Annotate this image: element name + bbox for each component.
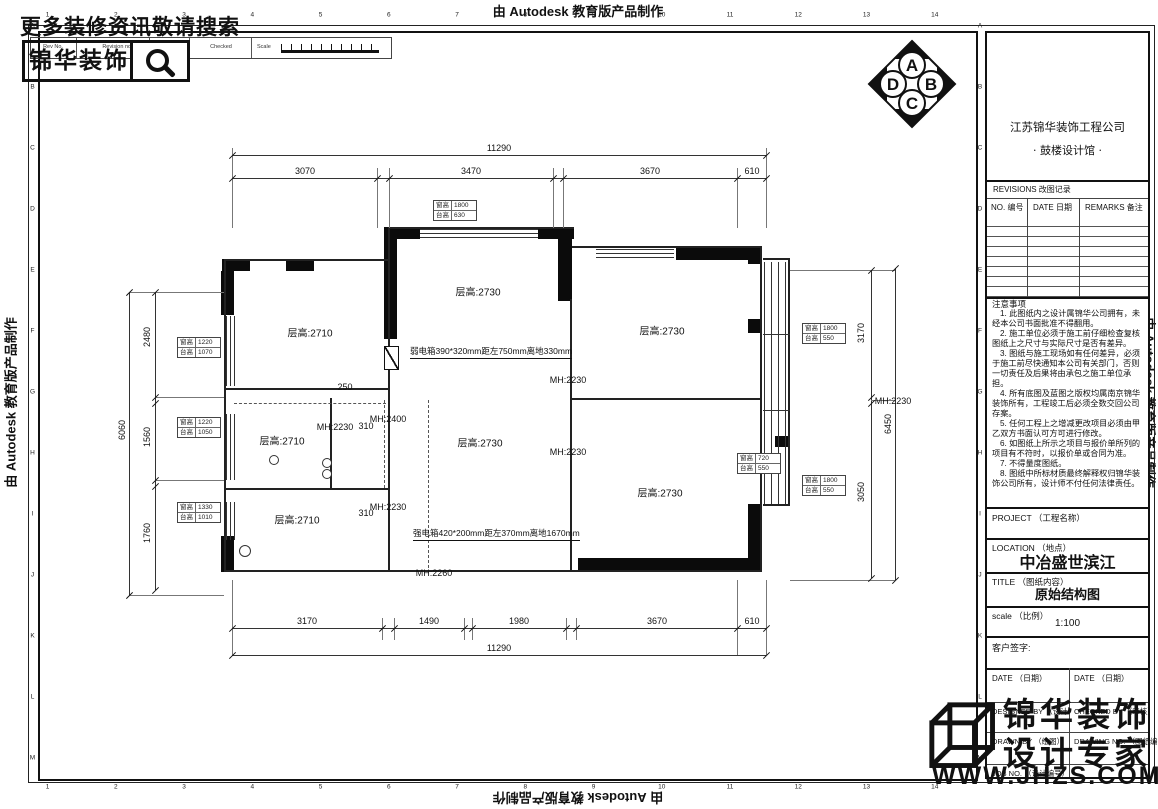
dimension-tick bbox=[892, 577, 899, 584]
divider bbox=[987, 572, 1148, 574]
dimension-label: 1760 bbox=[142, 523, 152, 543]
sill-height-key: 台高 bbox=[738, 464, 756, 473]
window-line bbox=[420, 237, 538, 238]
grid-row-right: J bbox=[978, 572, 981, 579]
extension-line bbox=[790, 580, 895, 581]
divider bbox=[987, 668, 1148, 670]
scale-label: Scale bbox=[257, 44, 271, 50]
window-height-key: 窗高 bbox=[434, 201, 452, 211]
extension-line bbox=[766, 148, 767, 228]
grid-col-top: 13 bbox=[863, 12, 870, 19]
grid-col-top: 14 bbox=[931, 12, 938, 19]
window-height-value: 1220 bbox=[196, 418, 220, 428]
dimension-label: 3050 bbox=[856, 482, 866, 502]
window-height-value: 1220 bbox=[196, 338, 220, 348]
window-height-key: 窗高 bbox=[178, 338, 196, 348]
window-line bbox=[230, 414, 231, 480]
grid-col-bottom: 1 bbox=[46, 784, 50, 791]
brand-logo: 锦华装饰 bbox=[22, 40, 136, 82]
grid-col-bottom: 3 bbox=[182, 784, 186, 791]
grid-col-bottom: 7 bbox=[455, 784, 459, 791]
grid-row-right: C bbox=[978, 145, 983, 152]
wall-line bbox=[224, 570, 762, 572]
window-height-tag: 窗高1800台高550 bbox=[802, 475, 846, 496]
wall-line bbox=[572, 246, 762, 248]
equipment-note: 弱电箱390*320mm距左750mm离地330mm bbox=[410, 345, 572, 359]
grid-col-top: 12 bbox=[795, 12, 802, 19]
wall-line bbox=[763, 504, 790, 506]
grid-col-bottom: 9 bbox=[592, 784, 596, 791]
mh-height-label: MH:2230 bbox=[370, 502, 407, 512]
graphic-scale-bar bbox=[281, 44, 379, 53]
location-value: 中冶盛世滨江 bbox=[987, 549, 1148, 573]
dimension-label: 6060 bbox=[117, 420, 127, 440]
extension-line bbox=[766, 580, 767, 655]
window-height-tag: 窗高1330台高1010 bbox=[177, 502, 221, 523]
window-height-tag: 窗高1220台高1070 bbox=[177, 337, 221, 358]
grid-col-bottom: 5 bbox=[319, 784, 323, 791]
dimension-label: 3070 bbox=[295, 166, 315, 176]
sill-height-key: 台高 bbox=[803, 486, 821, 495]
window-height-key: 窗高 bbox=[178, 503, 196, 513]
divider bbox=[987, 198, 1148, 199]
mh-height-label: MH:2230 bbox=[317, 422, 354, 432]
extension-line bbox=[737, 580, 738, 655]
window-line bbox=[234, 502, 235, 540]
grid-col-top: 6 bbox=[387, 12, 391, 19]
wall-solid-segment bbox=[384, 239, 397, 339]
window-height-tag: 窗高1220台高1050 bbox=[177, 417, 221, 438]
grid-col-top: 11 bbox=[727, 12, 734, 19]
divider bbox=[251, 38, 252, 58]
grid-col-bottom: 11 bbox=[727, 784, 734, 791]
grid-row-left: K bbox=[30, 633, 34, 640]
grid-col-top: 8 bbox=[523, 12, 527, 19]
grid-row-right: K bbox=[978, 633, 982, 640]
company-name: 江苏锦华装饰工程公司 bbox=[987, 119, 1148, 135]
grid-col-bottom: 2 bbox=[114, 784, 118, 791]
drawing-title: 原始结构图 bbox=[987, 584, 1148, 603]
rev-col-date: DATE 日期 bbox=[1033, 202, 1072, 213]
window-height-tag: 窗高720台高550 bbox=[737, 453, 781, 474]
grid-row-left: D bbox=[30, 206, 35, 213]
note-item: 4. 所有底图及蓝图之版权均属南京锦华装饰所有，工程竣工后必须全数交回公司存案。 bbox=[992, 389, 1144, 419]
window-height-value: 1330 bbox=[196, 503, 220, 513]
grid-row-left: E bbox=[30, 267, 34, 274]
dimension-tick bbox=[763, 652, 770, 659]
dimension-line bbox=[232, 655, 766, 656]
room-height-label: 层高:2710 bbox=[259, 433, 304, 448]
window-height-value: 1800 bbox=[452, 201, 476, 211]
window-height-tag: 窗高1800台高550 bbox=[802, 323, 846, 344]
notes-title: 注意事项 bbox=[992, 299, 1144, 309]
extension-line bbox=[232, 148, 233, 228]
grid-col-bottom: 8 bbox=[523, 784, 527, 791]
sill-height-value: 630 bbox=[452, 211, 476, 220]
grid-col-bottom: 6 bbox=[387, 784, 391, 791]
dimension-label: 3170 bbox=[856, 323, 866, 343]
wall-solid-segment bbox=[676, 246, 752, 260]
dimension-label: 1980 bbox=[509, 616, 529, 626]
extension-line bbox=[155, 397, 224, 398]
window-line bbox=[226, 316, 227, 386]
window-line bbox=[226, 414, 227, 480]
wall-line bbox=[570, 398, 762, 400]
equipment-note: 强电箱420*200mm距左370mm离地1670mm bbox=[413, 527, 580, 541]
sill-height-value: 550 bbox=[821, 486, 845, 495]
grid-row-left: C bbox=[30, 145, 35, 152]
grid-row-left: I bbox=[32, 511, 34, 518]
dashed-line bbox=[234, 403, 386, 404]
sill-height-key: 台高 bbox=[178, 348, 196, 357]
rev-col-no: NO. 编号 bbox=[991, 202, 1023, 213]
sill-height-value: 550 bbox=[756, 464, 780, 473]
room-height-label: 层高:2730 bbox=[637, 485, 682, 500]
electric-box-symbol bbox=[384, 346, 399, 370]
window-height-value: 720 bbox=[756, 454, 780, 464]
wall-line bbox=[388, 227, 390, 261]
grid-col-top: 10 bbox=[658, 12, 665, 19]
note-item: 3. 图纸与施工现场如有任何差异，必须于施工前尽快通知本公司有关部门，否则一切责… bbox=[992, 349, 1144, 389]
client-sign-label: 客户签字: bbox=[992, 641, 1031, 654]
dimension-label: 11290 bbox=[487, 643, 511, 653]
wall-line bbox=[224, 388, 390, 390]
divider bbox=[987, 606, 1148, 608]
magnifier-handle-icon bbox=[163, 65, 176, 78]
grid-row-right: G bbox=[977, 389, 982, 396]
grid-row-left: F bbox=[31, 328, 35, 335]
sill-height-key: 台高 bbox=[434, 211, 452, 220]
room-height-label: 层高:2730 bbox=[639, 323, 684, 338]
grid-col-top: 4 bbox=[250, 12, 254, 19]
grid-row-left: G bbox=[30, 389, 35, 396]
grid-row-left: H bbox=[30, 450, 35, 457]
grid-row-left: J bbox=[31, 572, 34, 579]
window-height-key: 窗高 bbox=[803, 476, 821, 486]
dimension-label: 2480 bbox=[142, 327, 152, 347]
rev-col-remarks: REMARKS 备注 bbox=[1085, 202, 1143, 213]
dimension-label: 3670 bbox=[640, 166, 660, 176]
sill-height-value: 1010 bbox=[196, 513, 220, 522]
fixture-circle bbox=[322, 458, 332, 468]
dimension-line bbox=[155, 292, 156, 590]
dimension-label: 610 bbox=[744, 166, 759, 176]
window-height-key: 窗高 bbox=[178, 418, 196, 428]
brand-website: WWW.JHZS.COM bbox=[932, 762, 1158, 791]
extension-line bbox=[129, 595, 224, 596]
dimension-label: 3670 bbox=[647, 616, 667, 626]
wall-solid-segment bbox=[221, 271, 234, 315]
window-line bbox=[226, 502, 227, 540]
window-line bbox=[763, 334, 790, 335]
grid-row-right: B bbox=[978, 84, 982, 91]
note-item: 1. 此图纸内之设计属锦华公司拥有，未经本公司书面批准不得翻用。 bbox=[992, 309, 1144, 329]
window-line bbox=[420, 233, 538, 234]
grid-row-right: H bbox=[978, 450, 983, 457]
mh-height-label: MH:2230 bbox=[550, 375, 587, 385]
dimension-label: 250 bbox=[337, 382, 352, 392]
notes-section: 注意事项 1. 此图纸内之设计属锦华公司拥有，未经本公司书面批准不得翻用。2. … bbox=[992, 299, 1144, 489]
grid-col-top: 5 bbox=[319, 12, 323, 19]
extension-line bbox=[155, 480, 224, 481]
divider bbox=[1027, 198, 1028, 298]
fixture-circle bbox=[239, 545, 251, 557]
grid-row-right: E bbox=[978, 267, 982, 274]
title-block: 江苏锦华装饰工程公司 · 鼓楼设计馆 · REVISIONS 改图记录 NO. … bbox=[985, 31, 1150, 779]
sill-height-key: 台高 bbox=[178, 513, 196, 522]
window-line bbox=[763, 410, 790, 411]
grid-row-right: D bbox=[978, 206, 983, 213]
wall-line bbox=[763, 258, 790, 260]
mh-height-label: MH:2260 bbox=[416, 568, 453, 578]
sill-height-value: 1070 bbox=[196, 348, 220, 357]
window-height-value: 1800 bbox=[821, 324, 845, 334]
mh-height-label: MH:2400 bbox=[370, 414, 407, 424]
project-label: PROJECT （工程名称） bbox=[992, 512, 1085, 524]
window-line bbox=[785, 262, 786, 504]
extension-line bbox=[232, 580, 233, 655]
grid-row-left: M bbox=[30, 755, 35, 762]
grid-row-left: B bbox=[30, 84, 34, 91]
scale-value: 1:100 bbox=[987, 618, 1148, 629]
studio-name: · 鼓楼设计馆 · bbox=[987, 142, 1148, 158]
window-height-tag: 窗高1800台高630 bbox=[433, 200, 477, 221]
dimension-line bbox=[871, 270, 872, 578]
dimension-line bbox=[232, 155, 766, 156]
note-item: 8. 图纸中所标材质最终解释权归锦华装饰公司所有，设计师不付任何法律责任。 bbox=[992, 469, 1144, 489]
date-label-2: DATE （日期） bbox=[1074, 673, 1129, 684]
fixture-circle bbox=[322, 469, 332, 479]
grid-col-bottom: 10 bbox=[658, 784, 665, 791]
sill-height-key: 台高 bbox=[803, 334, 821, 343]
wall-solid-segment bbox=[558, 239, 572, 301]
grid-col-bottom: 4 bbox=[250, 784, 254, 791]
grid-col-bottom: 12 bbox=[795, 784, 802, 791]
grid-row-right: F bbox=[978, 328, 982, 335]
divider bbox=[987, 636, 1148, 638]
date-label-1: DATE （日期） bbox=[992, 673, 1047, 684]
grid-col-top: 7 bbox=[455, 12, 459, 19]
drawing-sheet: 由 Autodesk 教育版产品制作 由 Autodesk 教育版产品制作 由 … bbox=[0, 0, 1158, 809]
dimension-label: 3470 bbox=[461, 166, 481, 176]
search-promo-text: 更多装修资讯敬请搜索 bbox=[20, 11, 240, 41]
wall-line bbox=[224, 488, 390, 490]
divider bbox=[987, 180, 1148, 182]
dimension-label: 1490 bbox=[419, 616, 439, 626]
window-line bbox=[234, 414, 235, 480]
grid-row-right: A bbox=[978, 23, 982, 30]
window-height-key: 窗高 bbox=[738, 454, 756, 464]
sill-height-value: 550 bbox=[821, 334, 845, 343]
room-height-label: 层高:2730 bbox=[455, 284, 500, 299]
grid-row-right: I bbox=[979, 511, 981, 518]
room-height-label: 层高:2710 bbox=[287, 325, 332, 340]
revision-empty-rows bbox=[987, 217, 1148, 298]
note-item: 5. 任何工程上之增减更改项目必须由甲乙双方书面认可方可进行修改。 bbox=[992, 419, 1144, 439]
window-line bbox=[596, 249, 674, 250]
divider bbox=[1079, 198, 1080, 298]
dimension-line bbox=[895, 268, 896, 580]
fixture-circle bbox=[269, 455, 279, 465]
mh-height-label: MH:2230 bbox=[875, 396, 912, 406]
dimension-line bbox=[232, 178, 766, 179]
grid-col-top: 9 bbox=[592, 12, 596, 19]
divider bbox=[987, 538, 1148, 540]
note-item: 6. 如图纸上所示之项目与报价单所列的项目有不符时，以报价单或合同为准。 bbox=[992, 439, 1144, 459]
window-height-value: 1800 bbox=[821, 476, 845, 486]
grid-col-bottom: 13 bbox=[863, 784, 870, 791]
grid-row-left: L bbox=[31, 694, 35, 701]
window-line bbox=[596, 257, 674, 258]
wall-line bbox=[760, 246, 762, 572]
window-height-key: 窗高 bbox=[803, 324, 821, 334]
room-height-label: 层高:2730 bbox=[457, 435, 502, 450]
wall-solid-segment bbox=[221, 536, 234, 572]
window-line bbox=[596, 253, 674, 254]
dimension-line bbox=[129, 292, 130, 595]
dimension-label: 3170 bbox=[297, 616, 317, 626]
sill-height-value: 1050 bbox=[196, 428, 220, 437]
wall-line bbox=[788, 258, 790, 506]
note-item: 2. 施工单位必须于施工前仔细检查复核图纸上之尺寸与实际尺寸是否有差异。 bbox=[992, 329, 1144, 349]
dimension-label: 6450 bbox=[883, 414, 893, 434]
room-height-label: 层高:2710 bbox=[274, 512, 319, 527]
revisions-header: REVISIONS 改图记录 bbox=[993, 184, 1071, 195]
extension-line bbox=[129, 292, 224, 293]
divider bbox=[987, 507, 1148, 509]
dimension-label: 610 bbox=[744, 616, 759, 626]
notes-list: 1. 此图纸内之设计属锦华公司拥有，未经本公司书面批准不得翻用。2. 施工单位必… bbox=[992, 309, 1144, 489]
dimension-label: 1560 bbox=[142, 427, 152, 447]
checked-label: Checked bbox=[210, 44, 232, 50]
window-line bbox=[420, 229, 538, 230]
dashed-line bbox=[428, 400, 429, 568]
search-icon bbox=[130, 40, 190, 82]
window-line bbox=[230, 502, 231, 540]
dimension-line bbox=[232, 628, 766, 629]
window-line bbox=[230, 316, 231, 386]
dimension-tick bbox=[152, 587, 159, 594]
window-line bbox=[234, 316, 235, 386]
sill-height-key: 台高 bbox=[178, 428, 196, 437]
note-item: 7. 不得量度图纸。 bbox=[992, 459, 1144, 469]
extension-line bbox=[790, 270, 895, 271]
wall-line bbox=[224, 259, 390, 261]
mh-height-label: MH:2230 bbox=[550, 447, 587, 457]
dimension-label: 11290 bbox=[487, 143, 511, 153]
